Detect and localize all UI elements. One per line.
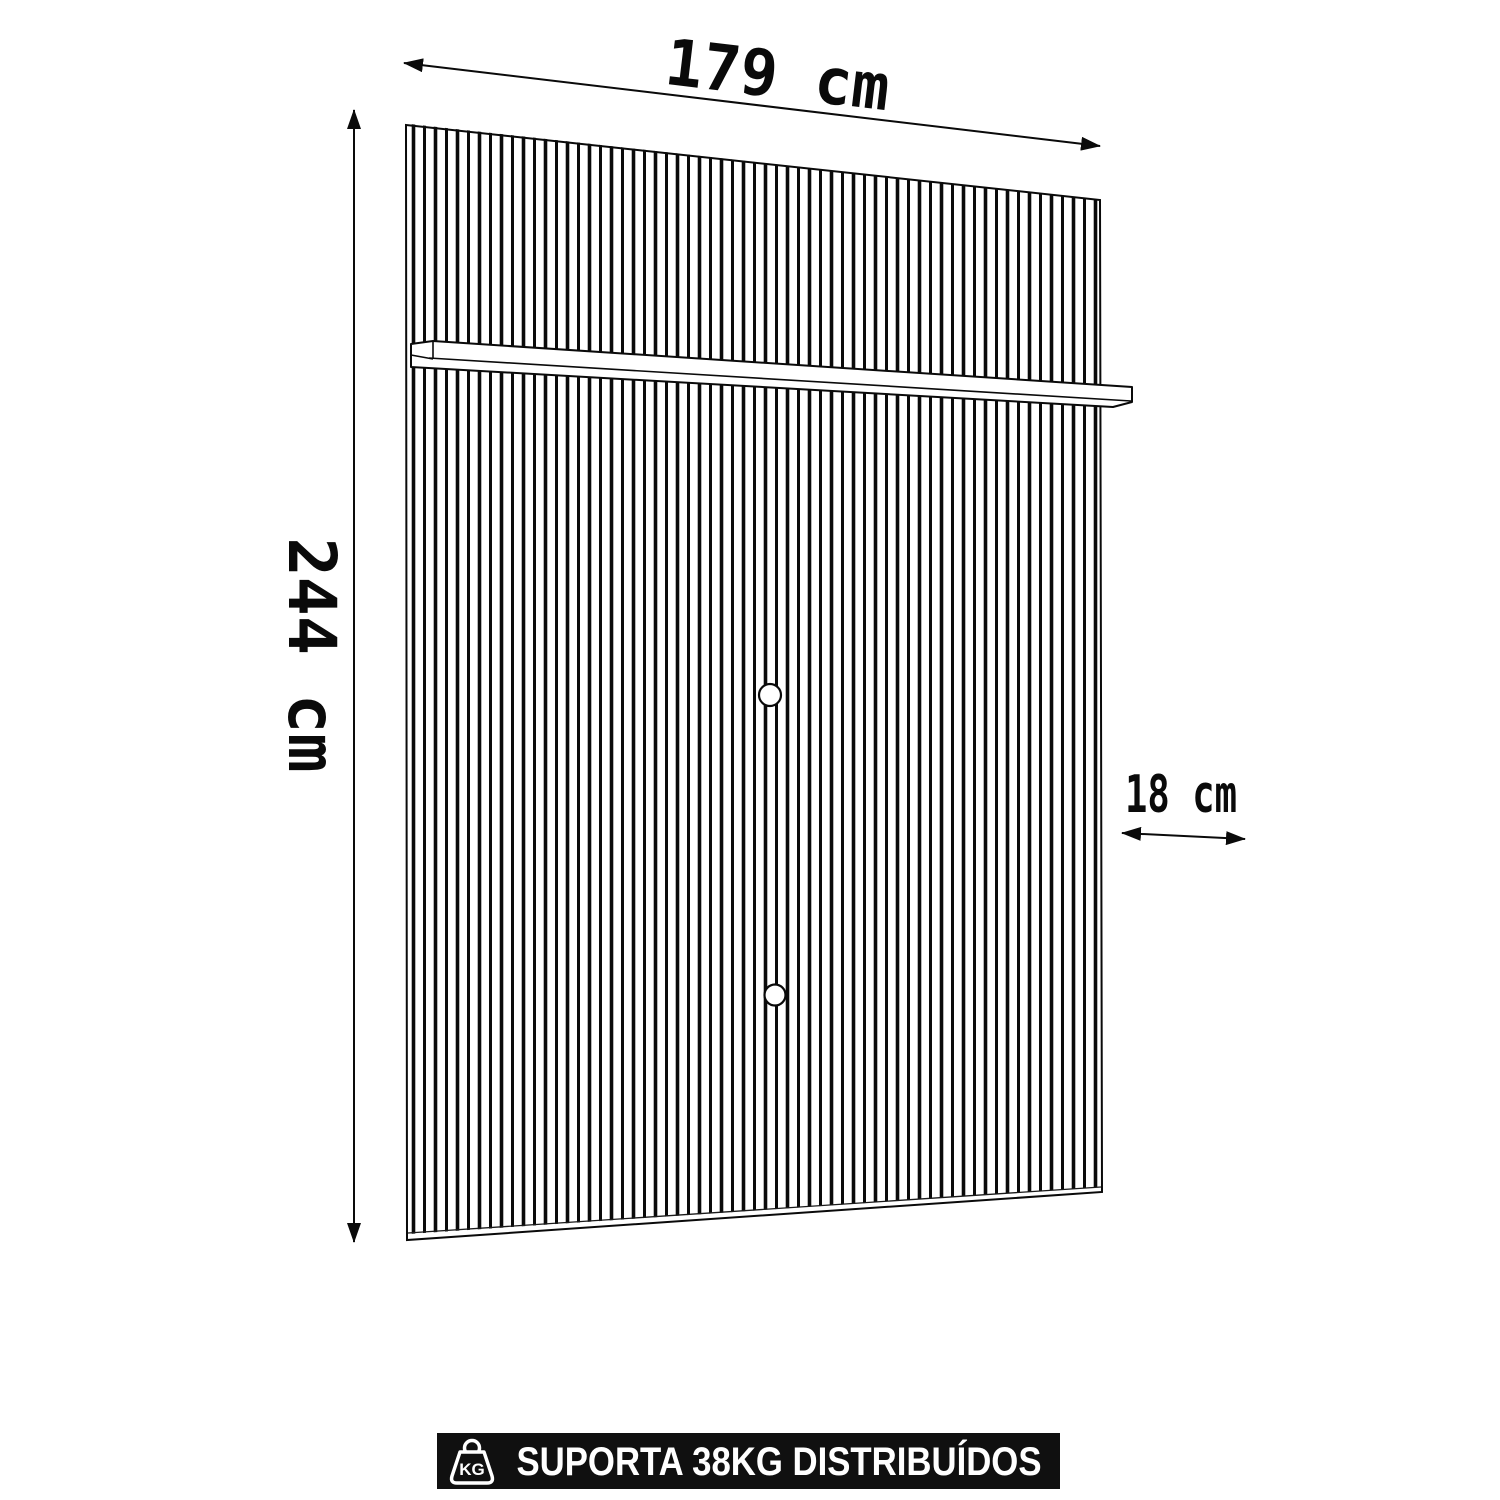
product-dimension-diagram: 179 cm 244 cm 18 cm KG SUPORTA 38KG DIST… xyxy=(0,0,1500,1500)
cable-hole-bottom xyxy=(765,985,786,1006)
diagram-canvas: 179 cm 244 cm 18 cm KG SUPORTA 38KG DIST… xyxy=(0,0,1500,1500)
weight-kg-icon-text: KG xyxy=(459,1460,485,1479)
depth-dimension-arrow xyxy=(1122,833,1245,839)
width-dimension: 179 cm xyxy=(404,26,1100,146)
cable-hole-top xyxy=(759,684,781,706)
depth-dimension-label: 18 cm xyxy=(1125,765,1237,825)
height-dimension: 244 cm xyxy=(273,110,354,1242)
height-dimension-label: 244 cm xyxy=(273,538,350,773)
capacity-banner: KG SUPORTA 38KG DISTRIBUÍDOS xyxy=(437,1433,1060,1489)
depth-dimension: 18 cm xyxy=(1122,765,1245,839)
capacity-banner-label: SUPORTA 38KG DISTRIBUÍDOS xyxy=(517,1439,1042,1484)
width-dimension-label: 179 cm xyxy=(661,26,893,126)
slatted-panel xyxy=(406,115,1102,1250)
